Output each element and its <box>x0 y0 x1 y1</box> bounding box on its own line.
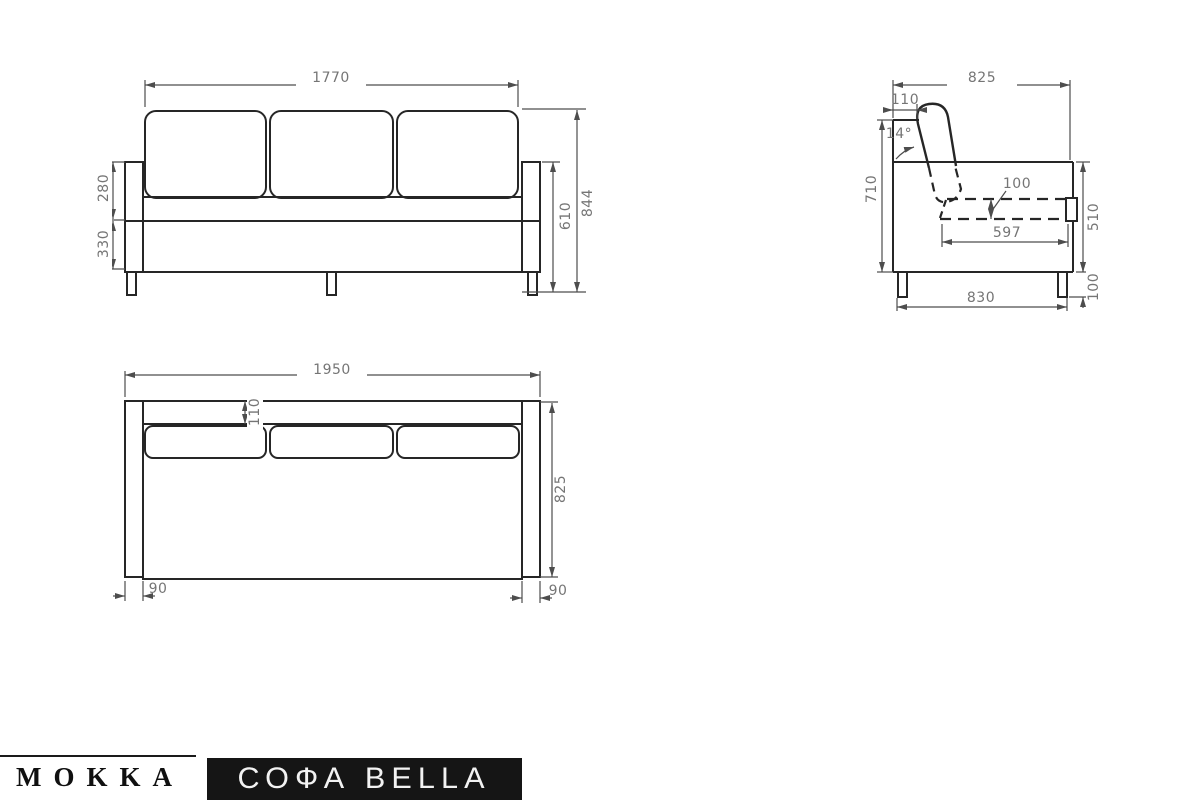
top-right-armrest <box>522 401 540 577</box>
dim-top-armrest-left: 90 <box>123 581 193 597</box>
front-right-armrest <box>522 162 540 272</box>
dim-side-backrest-angle: 14° <box>864 126 934 142</box>
dim-side-body-height: 510 <box>1086 182 1102 252</box>
dim-side-total-depth: 825 <box>947 70 1017 86</box>
brand-logo: MOKKA <box>16 762 184 793</box>
dim-side-seat-depth: 597 <box>972 225 1042 241</box>
top-back-cushion-2 <box>270 426 393 458</box>
front-base <box>125 221 540 272</box>
top-view-drawing <box>125 401 540 579</box>
dim-top-total-depth: 825 <box>553 454 569 524</box>
side-leg-back <box>898 272 907 297</box>
dim-side-base-depth: 830 <box>946 290 1016 306</box>
dim-top-back-rail-depth: 110 <box>247 377 263 447</box>
dim-side-leg-height: 100 <box>1086 252 1102 322</box>
product-name: СОФА BELLA <box>238 762 491 796</box>
dim-side-cushion-thickness: 100 <box>982 176 1052 192</box>
front-seat-rail <box>143 197 522 221</box>
dim-front-armrest-height: 610 <box>558 181 574 251</box>
drawing-linework <box>0 0 1200 800</box>
side-latch <box>1066 198 1077 221</box>
dim-front-base-height: 330 <box>96 209 112 279</box>
dim-front-cushion-width: 1770 <box>296 70 366 86</box>
dim-side-backrest-thickness: 110 <box>870 92 940 108</box>
brand-divider-rule <box>0 755 196 757</box>
front-leg-center <box>327 272 336 295</box>
dim-top-total-width: 1950 <box>297 362 367 378</box>
front-back-cushion-3 <box>397 111 518 198</box>
side-leg-front <box>1058 272 1067 297</box>
front-leg-left <box>127 272 136 295</box>
dim-top-armrest-right: 90 <box>523 583 593 599</box>
top-view-dimensions <box>113 371 558 603</box>
dim-front-total-height: 844 <box>580 168 596 238</box>
product-name-plate: СОФА BELLA <box>207 758 522 800</box>
front-back-cushion-1 <box>145 111 266 198</box>
top-back-cushion-3 <box>397 426 519 458</box>
front-view-drawing <box>125 111 540 295</box>
top-left-armrest <box>125 401 143 577</box>
dim-side-height-to-top: 710 <box>864 154 880 224</box>
top-body <box>143 401 522 579</box>
front-left-armrest <box>125 162 143 272</box>
sofa-technical-drawing: 1770 280 330 610 844 825 110 14° 710 100… <box>0 0 1200 800</box>
side-backrest-cushion-hidden <box>929 166 961 202</box>
front-back-cushion-2 <box>270 111 393 198</box>
